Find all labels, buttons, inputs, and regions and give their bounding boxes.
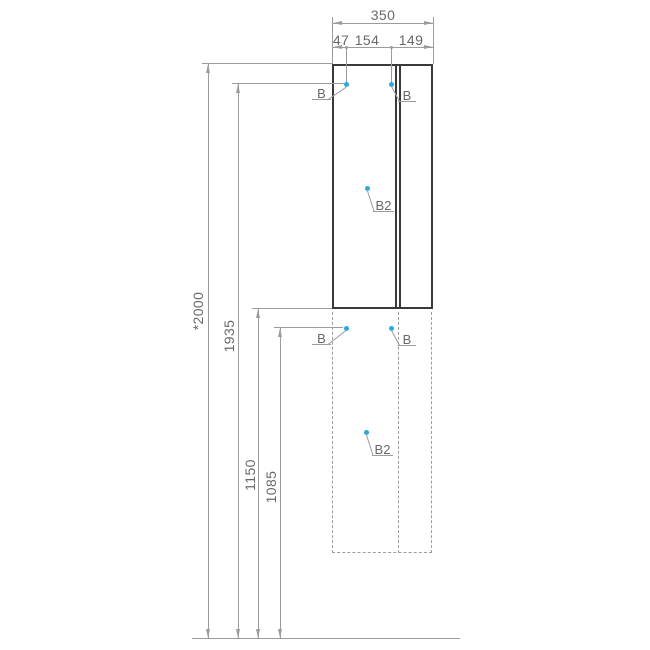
extension-line bbox=[252, 308, 332, 309]
callout-b-lower-left: B bbox=[312, 332, 331, 345]
dim-line-upper-fixing bbox=[238, 84, 239, 638]
arrowhead bbox=[278, 629, 282, 638]
arrowhead bbox=[206, 64, 210, 73]
dim-width-seg2: 154 bbox=[352, 33, 382, 47]
dim-line-height-total bbox=[208, 64, 209, 638]
arrowhead bbox=[236, 629, 240, 638]
dim-height-total: *2000 bbox=[191, 292, 205, 331]
dim-width-total: 350 bbox=[333, 8, 433, 22]
lower-position-left-edge bbox=[332, 312, 333, 553]
dim-line-lower-fixing bbox=[280, 328, 281, 638]
dim-line-lower-top bbox=[258, 309, 259, 638]
dim-lower-top-height: 1150 bbox=[243, 459, 257, 491]
dim-upper-fixing-height: 1935 bbox=[222, 320, 236, 353]
extension-line bbox=[232, 83, 344, 84]
cabinet-door-split-line-right bbox=[399, 66, 401, 307]
arrowhead bbox=[206, 629, 210, 638]
lower-position-bottom-edge bbox=[332, 552, 432, 553]
lower-position-split-line bbox=[398, 312, 399, 553]
technical-drawing-canvas: 350 47 154 149 *2000 1935 1150 1085 B B bbox=[0, 0, 650, 650]
extension-line bbox=[346, 47, 347, 83]
dim-width-seg1: 47 bbox=[329, 33, 353, 47]
floor-line bbox=[192, 638, 460, 639]
arrowhead bbox=[256, 309, 260, 318]
callout-b-upper-right: B bbox=[398, 89, 416, 102]
dim-lower-fixing-height: 1085 bbox=[264, 471, 278, 504]
callout-b2-lower: B2 bbox=[372, 443, 393, 456]
cabinet-outline bbox=[332, 64, 433, 309]
extension-line bbox=[433, 17, 434, 64]
extension-line bbox=[391, 47, 392, 83]
extension-line bbox=[274, 327, 343, 328]
cabinet-door-split-line-left bbox=[395, 66, 397, 307]
callout-b-upper-left: B bbox=[312, 87, 331, 100]
dim-width-seg3: 149 bbox=[396, 33, 426, 47]
lower-position-right-edge bbox=[431, 312, 432, 553]
arrowhead bbox=[256, 629, 260, 638]
callout-b2-upper: B2 bbox=[373, 199, 394, 212]
callout-b-lower-right: B bbox=[398, 333, 416, 346]
arrowhead bbox=[236, 84, 240, 93]
dim-line-width-total bbox=[333, 23, 433, 24]
arrowhead bbox=[278, 328, 282, 337]
extension-line bbox=[202, 63, 332, 64]
